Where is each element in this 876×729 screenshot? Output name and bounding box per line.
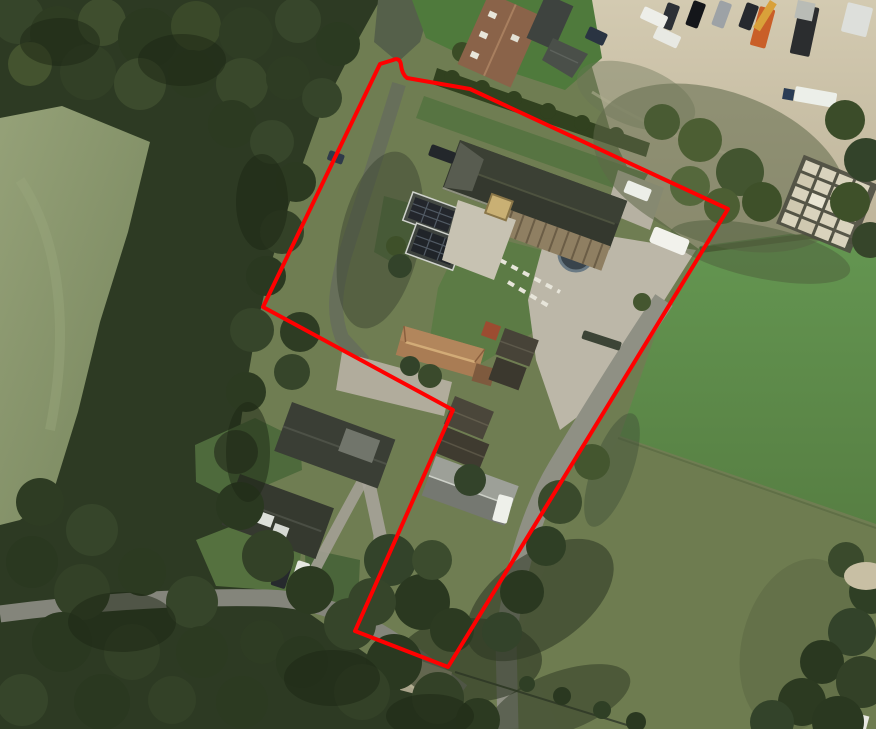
truck-cab	[794, 0, 815, 21]
blue-container	[782, 88, 795, 101]
aerial-map-canvas[interactable]	[0, 0, 876, 729]
aerial-map-viewport[interactable]	[0, 0, 876, 729]
